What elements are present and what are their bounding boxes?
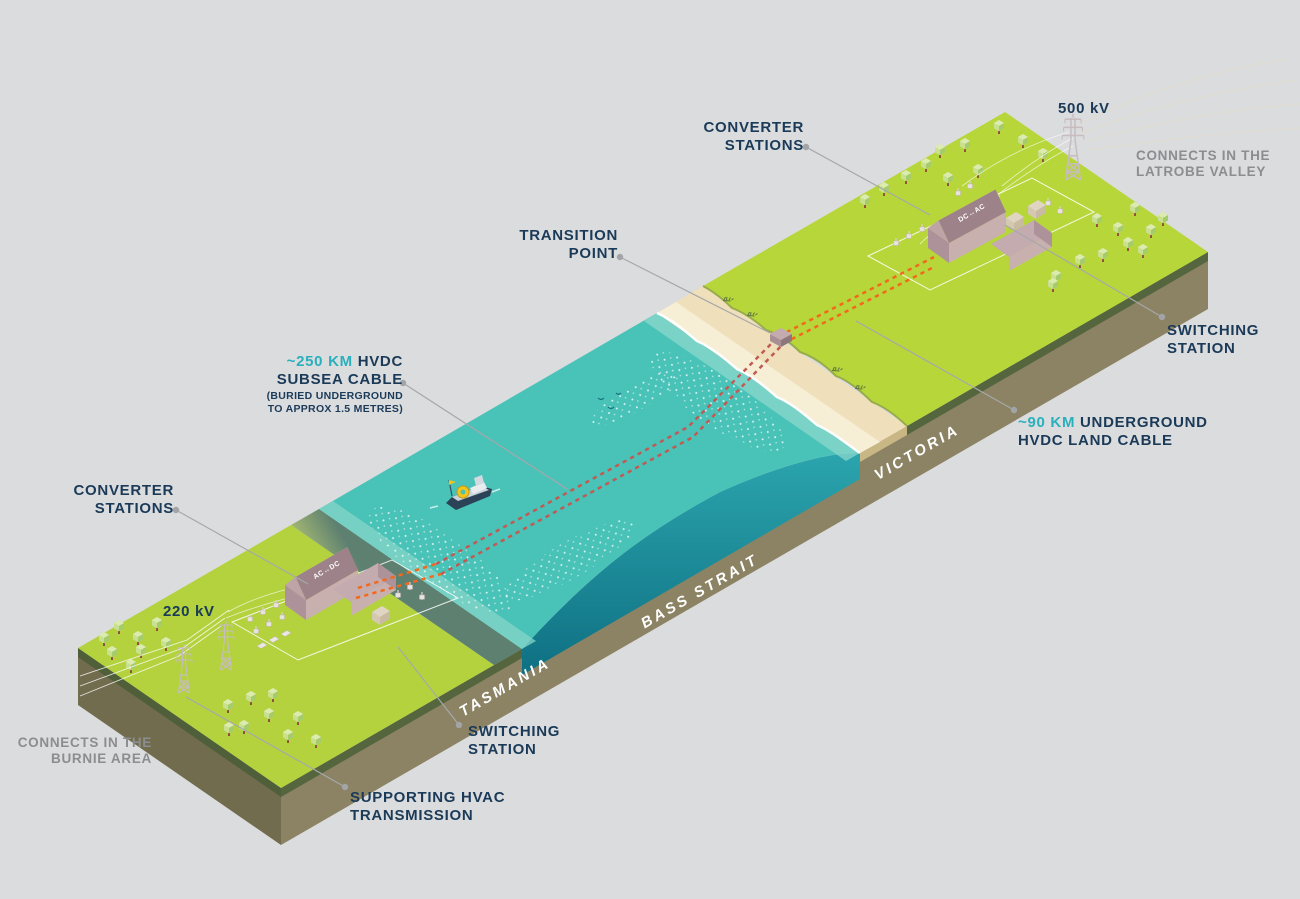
label-land-cable: ~90 KM UNDERGROUND HVDC LAND CABLE [1018,414,1208,451]
label-converter-stations-top: CONVERTER STATIONS [704,119,804,156]
infographic-canvas: CONVERTER STATIONS 500 kV CONNECTS IN TH… [0,0,1300,899]
subsea-distance: ~250 KM [287,353,353,370]
label-switching-station-bottom: SWITCHING STATION [468,723,560,760]
label-converter-stations-left: CONVERTER STATIONS [74,482,174,519]
label-switching-station-right: SWITCHING STATION [1167,322,1259,359]
label-connects-burnie: CONNECTS IN THE BURNIE AREA [18,735,152,768]
label-220kv: 220 kV [163,603,215,621]
label-500kv: 500 kV [1058,100,1110,118]
label-transition-point: TRANSITION POINT [519,227,618,264]
label-connects-latrobe: CONNECTS IN THE LATROBE VALLEY [1136,148,1270,181]
label-supporting-hvac: SUPPORTING HVAC TRANSMISSION [350,789,505,826]
label-subsea-cable: ~250 KM HVDC SUBSEA CABLE (BURIED UNDERG… [267,353,403,416]
landcable-distance: ~90 KM [1018,414,1075,431]
